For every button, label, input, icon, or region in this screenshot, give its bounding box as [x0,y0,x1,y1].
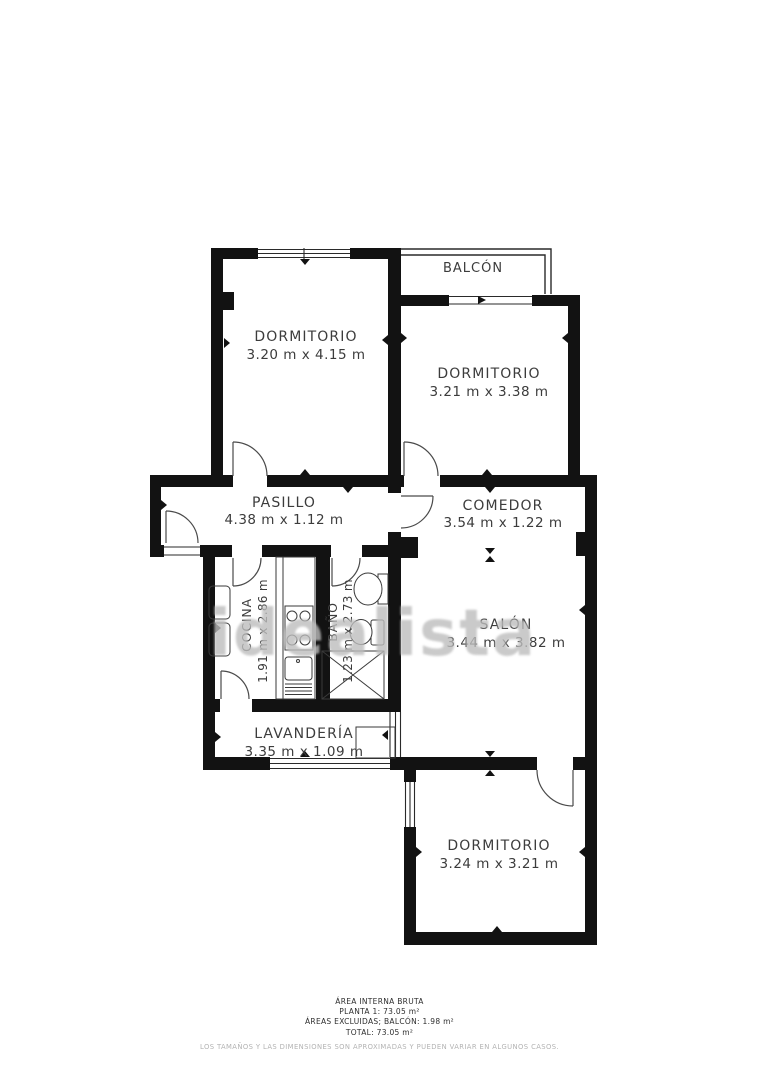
door-laundry [221,671,249,699]
disclaimer-text: LOS TAMAÑOS Y LAS DIMENSIONES SON APROXI… [0,1043,759,1052]
area-summary-total: TOTAL: 73.05 m² [0,1028,759,1038]
room-dims-lavanderia: 3.35 m x 1.09 m [244,744,363,760]
door-bedroom3 [537,770,573,806]
balcony-label: BALCÓN [443,260,503,276]
window-bedroom1-top [258,248,350,259]
floorplan-page: BALCÓN DORMITORIO 3.20 m x 4.15 m DORMIT… [0,0,759,1080]
door-bedroom2 [404,442,438,476]
area-summary-excluded: ÁREAS EXCLUIDAS; BALCÓN: 1.98 m² [0,1017,759,1027]
door-bedroom1 [233,442,267,476]
room-label-lavanderia: LAVANDERÍA [254,725,354,742]
door-entrance [166,511,198,543]
room-dims-dormitorio-3: 3.24 m x 3.21 m [439,856,558,872]
room-label-dormitorio-3: DORMITORIO [447,838,550,854]
area-summary-title: ÁREA INTERNA BRUTA [0,997,759,1007]
room-dims-pasillo: 4.38 m x 1.12 m [224,512,343,528]
area-summary: ÁREA INTERNA BRUTA PLANTA 1: 73.05 m² ÁR… [0,997,759,1052]
room-dims-dormitorio-2: 3.21 m x 3.38 m [429,384,548,400]
room-label-dormitorio-1: DORMITORIO [254,329,357,345]
room-dims-comedor: 3.54 m x 1.22 m [443,515,562,531]
idealista-watermark: idealista [209,597,537,671]
room-dims-dormitorio-1: 3.20 m x 4.15 m [246,347,365,363]
area-summary-floor: PLANTA 1: 73.05 m² [0,1007,759,1017]
window-bedroom3-left [406,782,415,827]
floorplan-drawing: BALCÓN DORMITORIO 3.20 m x 4.15 m DORMIT… [0,0,759,1080]
room-label-dormitorio-2: DORMITORIO [437,366,540,382]
balcony-sliding-door [449,295,532,306]
room-label-comedor: COMEDOR [463,498,544,514]
entrance-threshold [164,545,200,557]
room-label-pasillo: PASILLO [252,495,316,511]
door-comedor [401,496,433,528]
